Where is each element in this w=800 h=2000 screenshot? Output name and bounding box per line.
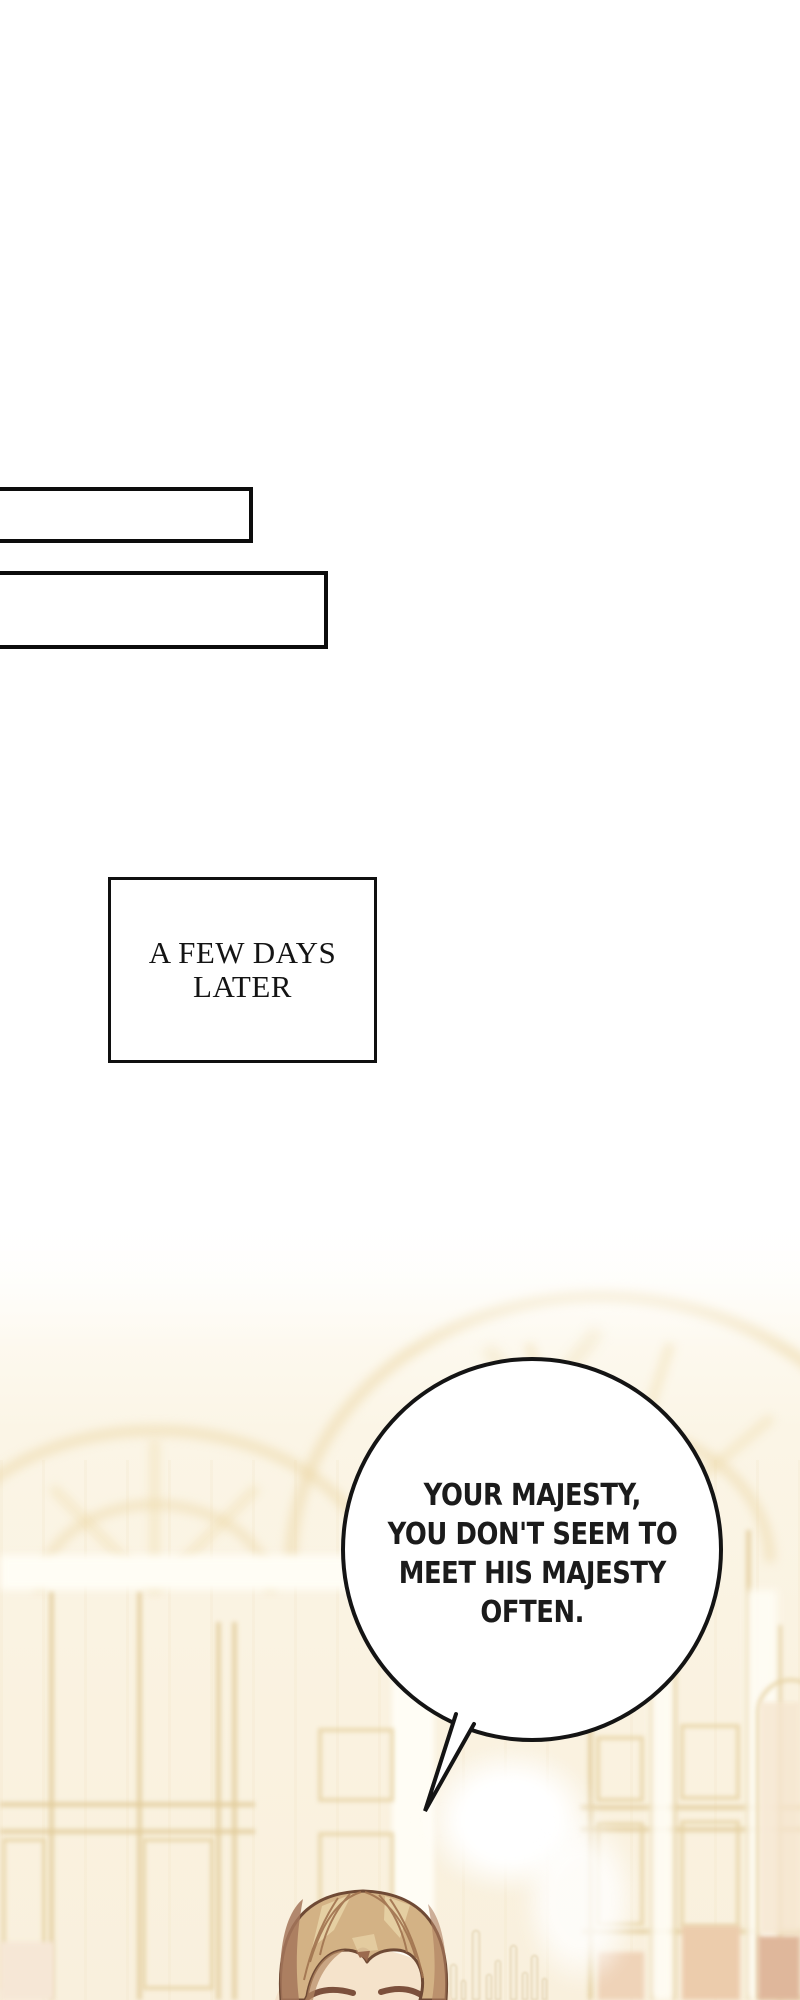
white-rail xyxy=(0,1555,370,1590)
peach-panel xyxy=(760,1702,800,1934)
narration-box-2 xyxy=(0,571,328,649)
candelabra-candle xyxy=(531,1955,538,2000)
character-head xyxy=(250,1880,470,2000)
scene-top-fade xyxy=(0,1200,800,1350)
candelabra-candle xyxy=(486,1974,492,2000)
speech-line: YOU DON'T SEEM TO xyxy=(387,1515,677,1554)
comic-page: A FEW DAYS LATER xyxy=(0,0,800,2000)
speech-line: YOUR MAJESTY, xyxy=(423,1476,640,1515)
candelabra-candle xyxy=(522,1972,528,2000)
door-rail xyxy=(0,1829,255,1834)
candelabra-candle xyxy=(472,1930,480,2000)
speech-bubble-text: YOUR MAJESTY, YOU DON'T SEEM TO MEET HIS… xyxy=(341,1357,723,1742)
peach-panel xyxy=(682,1926,740,2000)
time-skip-text: A FEW DAYS LATER xyxy=(124,936,362,1004)
door-panel xyxy=(142,1838,214,1990)
door-frame-line xyxy=(49,1592,54,2000)
light-glow xyxy=(520,1810,640,1990)
peach-panel xyxy=(0,1942,54,2000)
narration-box-1 xyxy=(0,487,253,543)
door-panel xyxy=(680,1820,740,1928)
door-panel xyxy=(596,1736,644,1802)
speech-line: OFTEN. xyxy=(480,1593,584,1632)
candelabra-candle xyxy=(495,1960,501,2000)
door-rail xyxy=(0,1802,255,1807)
candelabra-candle xyxy=(542,1978,547,2000)
time-skip-box: A FEW DAYS LATER xyxy=(108,877,377,1063)
door-frame-line xyxy=(232,1622,237,2000)
speech-line: MEET HIS MAJESTY xyxy=(398,1554,665,1593)
door-frame-line xyxy=(216,1622,221,2000)
candelabra-candle xyxy=(510,1945,517,2000)
peach-panel xyxy=(758,1936,800,2000)
